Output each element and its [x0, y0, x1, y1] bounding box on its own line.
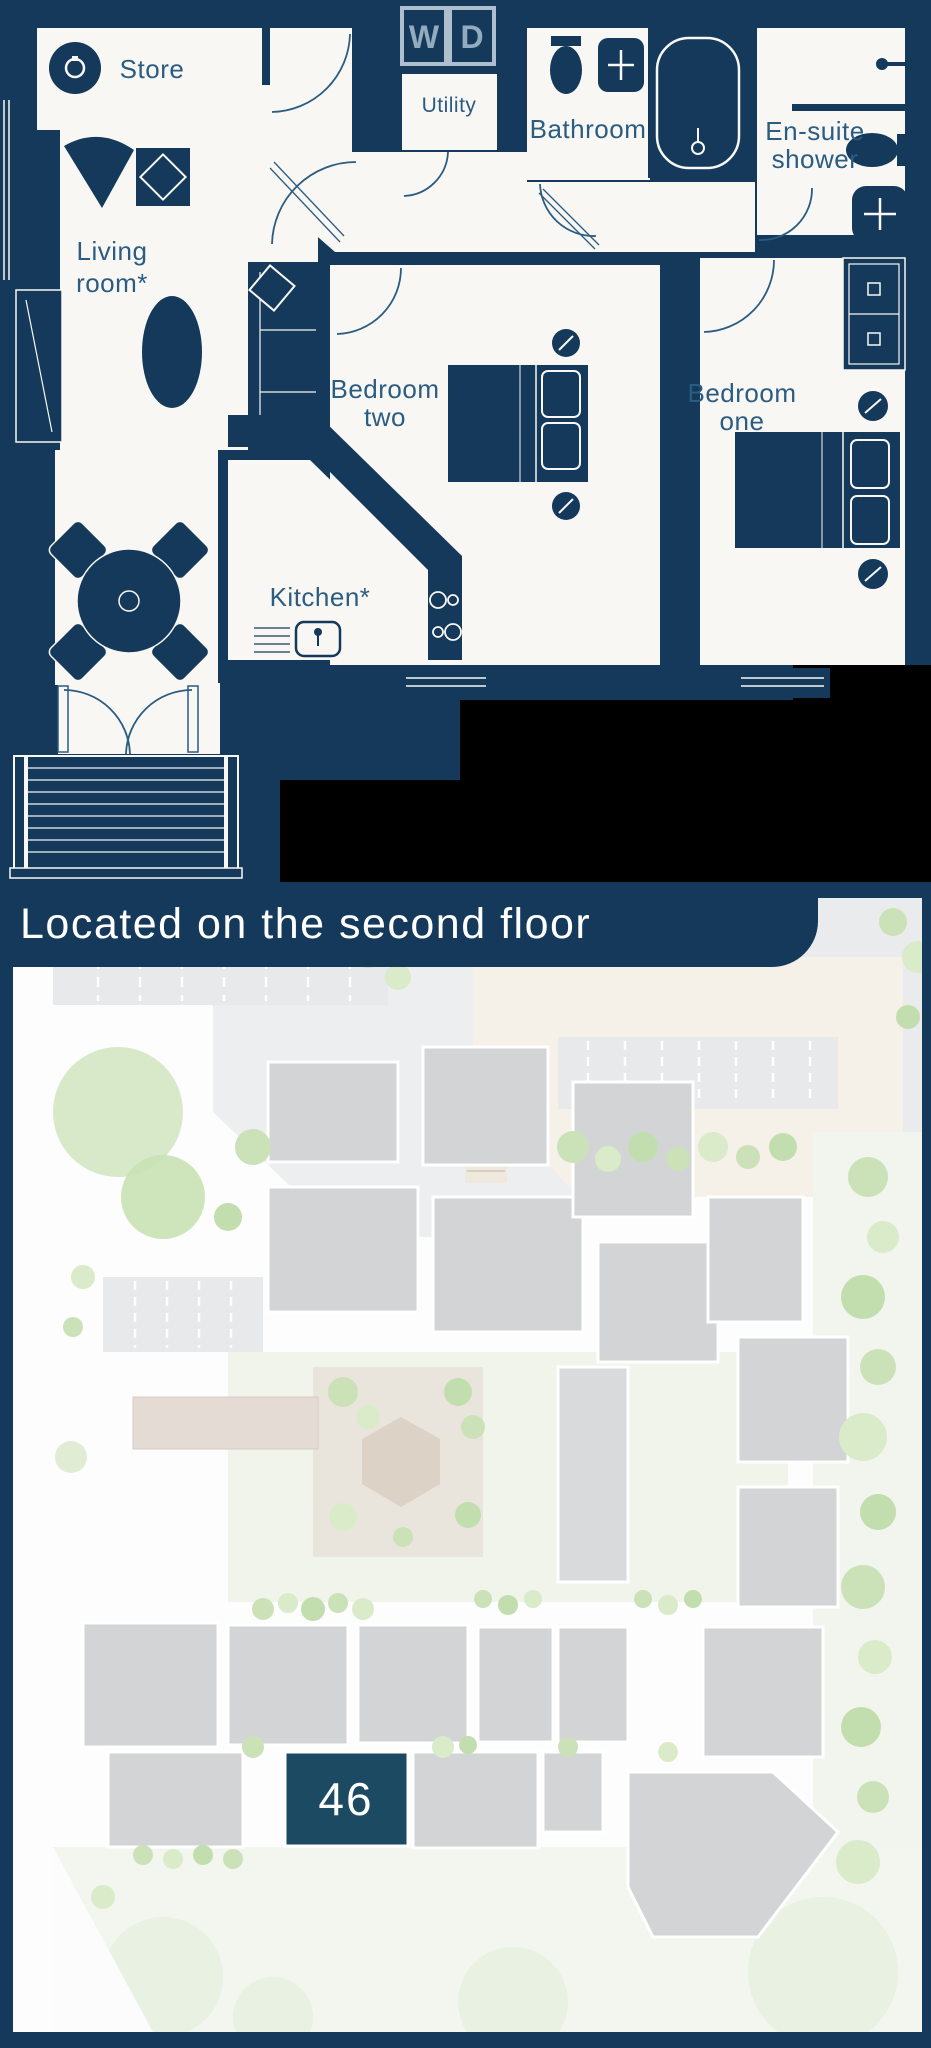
label-bedroom-one-1: Bedroom	[688, 378, 797, 408]
label-ensuite-2: shower	[772, 144, 859, 174]
bed-bedroom-two	[448, 365, 588, 482]
bed-bedroom-one	[735, 432, 900, 548]
label-utility: Utility	[422, 94, 477, 117]
site-map: 46	[13, 897, 922, 2032]
cushion-chair-icon	[136, 148, 190, 206]
balcony-deck	[10, 756, 242, 878]
washer-letter: W	[409, 19, 440, 55]
window-bedroom-one	[735, 668, 830, 698]
tv-unit-icon	[16, 290, 62, 442]
dryer-letter: D	[460, 19, 483, 55]
toilet-icon	[550, 36, 582, 94]
label-living-1: Living	[77, 236, 148, 266]
label-ensuite-1: En-suite	[765, 116, 864, 146]
label-bedroom-two-1: Bedroom	[331, 374, 440, 404]
label-bathroom: Bathroom	[530, 114, 647, 144]
page: W D	[0, 0, 931, 2048]
floorplan-drawing: W D	[0, 0, 931, 905]
basin-icon	[598, 38, 644, 92]
label-living-2: room*	[76, 268, 148, 298]
label-store: Store	[120, 54, 185, 84]
parking-area	[103, 1277, 263, 1352]
label-bedroom-one-2: one	[720, 406, 765, 436]
label-bedroom-two-2: two	[364, 402, 406, 432]
boiler-icon	[49, 42, 101, 94]
wardrobe-icon	[843, 258, 905, 370]
coffee-table-icon	[142, 296, 202, 408]
site-map-frame: 46	[0, 897, 931, 2048]
unit-46-label: 46	[318, 1773, 373, 1825]
banner-title: Located on the second floor	[0, 900, 591, 949]
shower-partition	[792, 104, 905, 111]
location-banner: Located on the second floor	[0, 882, 818, 967]
courtyard-building	[133, 1397, 318, 1449]
ensuite-basin-icon	[852, 186, 908, 242]
unit-46-block: 46	[285, 1752, 408, 1846]
bath-icon	[648, 28, 748, 178]
window-bedroom-two	[400, 668, 492, 698]
label-kitchen: Kitchen*	[270, 582, 371, 612]
